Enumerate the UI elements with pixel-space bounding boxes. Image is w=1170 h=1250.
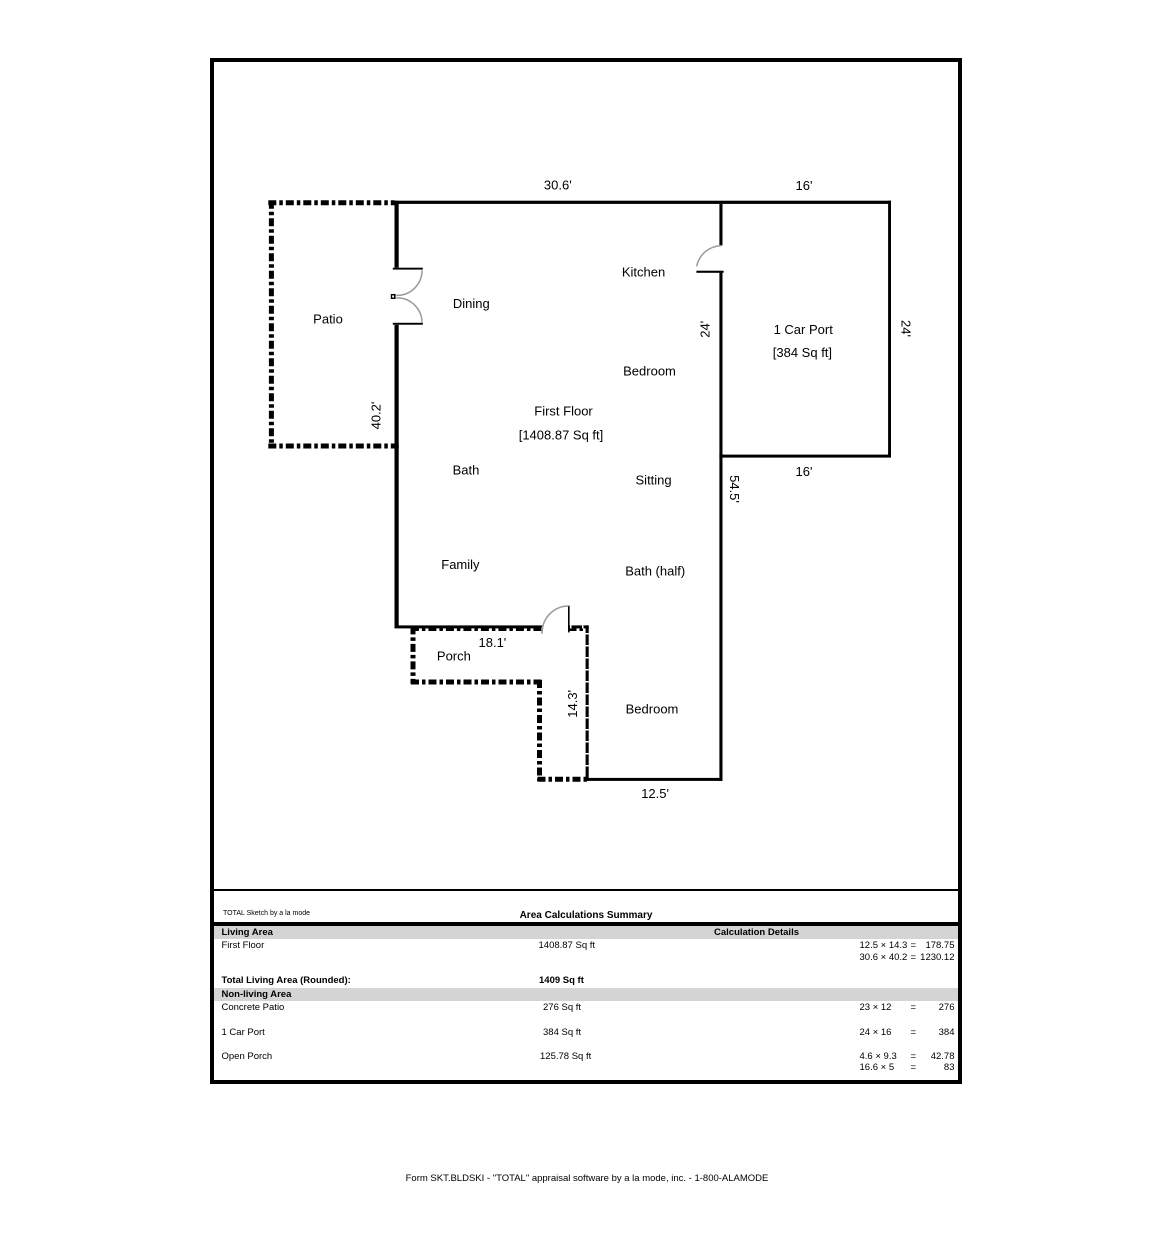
svg-text:Kitchen: Kitchen [622,265,665,280]
svg-text:54.5': 54.5' [727,475,742,503]
svg-text:40.2': 40.2' [369,402,384,430]
svg-text:[384 Sq ft]: [384 Sq ft] [773,345,832,360]
svg-text:Bath (half): Bath (half) [625,564,685,579]
svg-text:1 Car Port: 1 Car Port [774,322,834,337]
svg-text:18.1': 18.1' [479,635,507,650]
svg-text:14.3': 14.3' [565,690,580,718]
svg-text:24': 24' [697,321,712,338]
svg-text:Family: Family [441,557,480,572]
svg-text:[1408.87 Sq ft]: [1408.87 Sq ft] [519,428,604,443]
svg-text:Patio: Patio [313,312,343,327]
svg-text:Sitting: Sitting [636,473,672,488]
svg-text:First Floor: First Floor [534,404,593,419]
svg-text:12.5': 12.5' [641,786,669,801]
svg-text:16': 16' [796,178,813,193]
svg-text:Porch: Porch [437,649,471,664]
svg-text:Dining: Dining [453,296,490,311]
svg-text:16': 16' [796,464,813,479]
svg-text:Bedroom: Bedroom [626,702,679,717]
svg-text:24': 24' [899,320,914,337]
svg-text:Bedroom: Bedroom [623,364,676,379]
svg-text:30.6': 30.6' [544,178,572,193]
svg-text:Bath: Bath [453,463,480,478]
